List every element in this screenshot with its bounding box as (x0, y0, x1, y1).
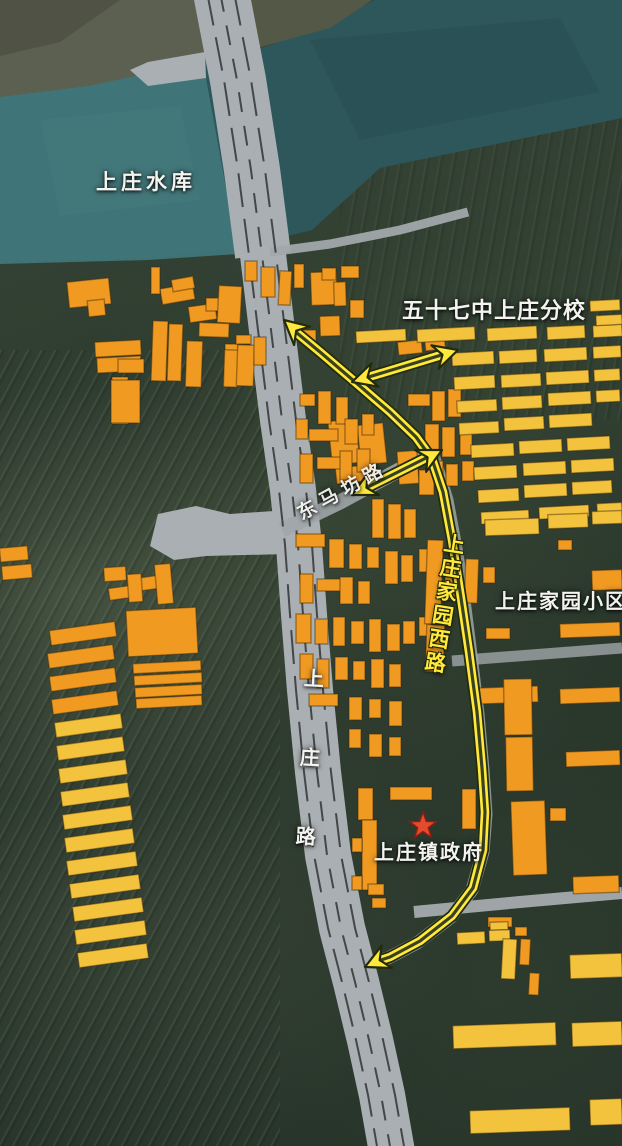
building (278, 271, 292, 306)
building (315, 619, 328, 644)
building (573, 875, 620, 894)
building (592, 510, 622, 524)
building (490, 922, 508, 931)
building (524, 483, 568, 498)
building (353, 661, 365, 680)
building (74, 920, 146, 945)
building (593, 345, 622, 358)
route-gap (362, 353, 448, 379)
building (487, 326, 538, 342)
label-town-government: 上庄镇政府 (374, 841, 484, 863)
building (340, 577, 353, 604)
building (560, 622, 620, 638)
building (387, 624, 400, 651)
building (95, 340, 142, 357)
building (0, 546, 29, 562)
building (596, 389, 621, 402)
building (351, 621, 364, 644)
building (446, 464, 458, 486)
building (335, 657, 348, 680)
building (385, 551, 398, 584)
building (571, 458, 615, 473)
label-jiayuan-community: 上庄家园小区 (495, 590, 622, 612)
building (544, 347, 588, 362)
building (350, 300, 364, 318)
building (296, 419, 308, 439)
building (519, 439, 563, 454)
building (49, 667, 116, 691)
building (369, 619, 381, 652)
building (550, 808, 566, 821)
building (58, 759, 127, 783)
building (134, 672, 202, 686)
building (334, 282, 347, 306)
building (549, 413, 593, 428)
building (453, 1022, 557, 1049)
building (470, 1107, 571, 1133)
building (590, 299, 621, 312)
building (167, 324, 183, 381)
building (352, 876, 362, 890)
building (560, 687, 620, 704)
building (333, 617, 345, 646)
building (403, 621, 415, 644)
building (87, 299, 106, 317)
building (296, 534, 325, 547)
building (558, 540, 572, 550)
building (111, 380, 140, 423)
building (300, 394, 315, 406)
building (483, 567, 495, 583)
building (454, 375, 496, 390)
building (126, 607, 198, 657)
building (572, 1021, 622, 1047)
building (245, 261, 257, 281)
building (320, 316, 341, 337)
building (56, 736, 124, 760)
building (519, 939, 530, 965)
building (499, 349, 538, 364)
building (511, 800, 548, 875)
building (372, 898, 386, 908)
label-school-branch: 五十七中上庄分校 (402, 300, 586, 324)
building (309, 429, 338, 441)
label-reservoir: 上庄水库 (96, 171, 196, 194)
building (322, 268, 336, 280)
building (404, 509, 416, 538)
building (504, 679, 533, 735)
building (506, 737, 534, 791)
building (358, 581, 370, 604)
building (185, 341, 203, 388)
building (199, 322, 229, 337)
building (151, 267, 160, 294)
building (442, 427, 455, 457)
building (358, 788, 373, 820)
building (49, 621, 116, 645)
building (127, 574, 143, 603)
building (390, 787, 432, 800)
building (151, 321, 168, 381)
building (474, 465, 518, 480)
building (104, 566, 127, 582)
building (369, 734, 382, 757)
building (523, 461, 567, 476)
building (64, 828, 134, 852)
building (590, 1098, 622, 1125)
building (296, 614, 311, 643)
building (254, 337, 266, 365)
building (570, 953, 622, 979)
building (356, 329, 407, 344)
building (389, 701, 402, 726)
building (371, 659, 384, 688)
building (352, 838, 362, 852)
building (154, 563, 173, 604)
building (417, 326, 476, 342)
building (548, 513, 588, 528)
building (66, 851, 137, 876)
building (546, 370, 590, 385)
building (401, 555, 413, 582)
building (596, 314, 622, 325)
building (567, 436, 611, 451)
building (566, 750, 620, 767)
building (318, 391, 331, 424)
building (462, 789, 476, 829)
building (349, 544, 362, 569)
side-road (452, 648, 622, 661)
building (69, 874, 140, 899)
building (369, 699, 381, 718)
government-star-icon (410, 812, 437, 837)
building (457, 931, 486, 944)
building (60, 782, 129, 806)
building (367, 547, 379, 568)
building (294, 264, 304, 288)
building (572, 480, 613, 495)
map-canvas: 上庄水库 五十七中上庄分校 东马坊路 上庄家园西路 上庄家园小区 上庄路 上庄镇… (0, 0, 622, 1146)
building (300, 454, 313, 483)
building (372, 499, 384, 538)
building (501, 373, 542, 388)
building (77, 943, 148, 968)
building (329, 539, 344, 568)
building (485, 518, 540, 536)
building (592, 569, 622, 590)
building (236, 335, 251, 344)
building (457, 399, 498, 413)
water-area (40, 106, 200, 216)
building (341, 266, 359, 278)
building (1, 564, 32, 581)
building (528, 973, 539, 995)
building (345, 419, 358, 444)
building (388, 504, 401, 539)
building (547, 325, 586, 340)
building (594, 368, 621, 381)
building (486, 628, 510, 639)
building (349, 729, 361, 748)
building (504, 416, 545, 431)
building (432, 391, 445, 421)
building (261, 267, 275, 297)
building (236, 345, 254, 387)
building (408, 394, 430, 406)
building (217, 285, 242, 323)
building (349, 697, 362, 720)
building (300, 574, 313, 603)
building (462, 461, 474, 481)
side-road (150, 506, 288, 560)
building (478, 488, 520, 503)
building (389, 664, 401, 687)
building (118, 359, 144, 373)
building (51, 690, 118, 714)
building (72, 897, 143, 922)
building (47, 644, 114, 668)
building (501, 939, 517, 980)
building (548, 391, 592, 406)
building (459, 421, 500, 435)
satellite-map-graphics (0, 0, 622, 1146)
building (515, 927, 527, 936)
building (362, 414, 374, 435)
side-road (414, 893, 622, 912)
building (54, 713, 122, 737)
building (452, 351, 495, 366)
building (389, 737, 401, 756)
building (133, 660, 201, 674)
building (471, 443, 515, 458)
building (502, 395, 543, 410)
building (317, 457, 342, 469)
building (368, 884, 384, 895)
building (62, 805, 132, 829)
